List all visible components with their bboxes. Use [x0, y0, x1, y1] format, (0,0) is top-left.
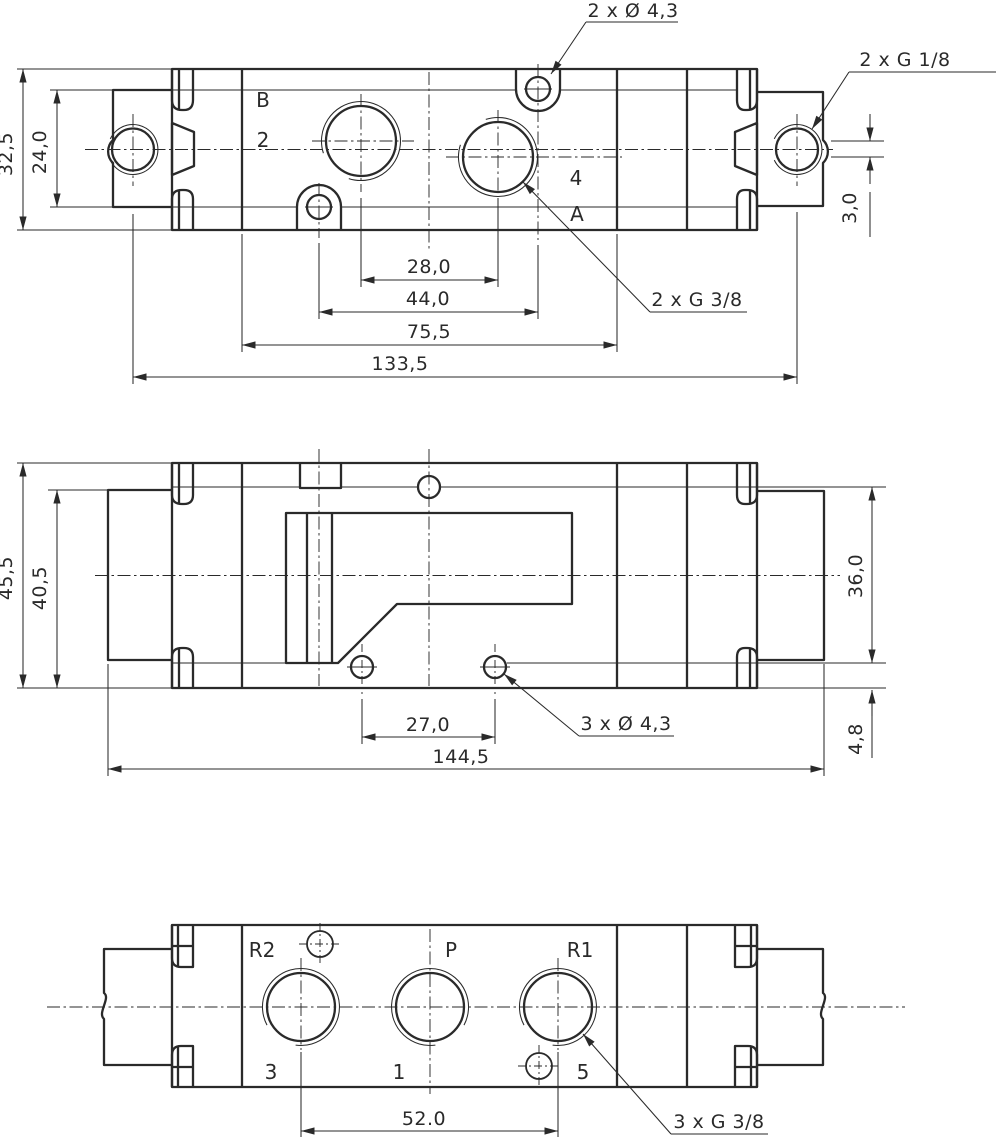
bottom-view-dimensions: 52.0: [301, 1108, 558, 1131]
port-label-r2: R2: [249, 938, 276, 962]
port-label-5: 5: [577, 1060, 590, 1084]
right-port-block: [757, 491, 824, 660]
technical-drawing: 32,5 24,0 28,0 44,0 75,5 133,5 3,0 2 x Ø…: [0, 0, 997, 1138]
dim-top-body-height: 32,5: [0, 132, 17, 176]
dim-side-hole-spacing: 27,0: [406, 714, 450, 736]
port-label-4: 4: [570, 166, 583, 190]
side-view-reference-lines: [172, 487, 886, 688]
port-label-1: 1: [393, 1060, 406, 1084]
mount-tab: [172, 648, 193, 688]
top-notch: [300, 463, 341, 488]
annotation-work-ports: 2 x G 3/8: [651, 289, 742, 311]
bottom-view-port-labels: R2 P R1 3 1 5: [249, 938, 594, 1084]
top-view-centerlines: [85, 64, 833, 252]
drawing-canvas: 32,5 24,0 28,0 44,0 75,5 133,5 3,0 2 x Ø…: [0, 0, 997, 1138]
side-view-dimensions: 45,5 40,5 27,0 144,5 36,0 4,8: [0, 463, 872, 769]
mount-tab: [172, 190, 193, 230]
port-label-b: B: [256, 88, 270, 112]
dim-top-block-height: 24,0: [29, 130, 51, 174]
top-view: 32,5 24,0 28,0 44,0 75,5 133,5 3,0 2 x Ø…: [0, 0, 996, 384]
dim-top-port-offset: 3,0: [839, 192, 861, 224]
side-view-centerlines: [95, 449, 840, 694]
mount-tab: [737, 463, 757, 504]
annotation-side-mount-holes: 3 x Ø 4,3: [580, 713, 671, 735]
dim-top-face-width: 75,5: [407, 321, 451, 343]
annotation-mount-holes: 2 x Ø 4,3: [587, 0, 678, 22]
side-view: 45,5 40,5 27,0 144,5 36,0 4,8 3 x Ø 4,3: [0, 449, 886, 776]
port-label-r1: R1: [567, 938, 594, 962]
annotation-pilot-ports: 2 x G 1/8: [859, 49, 950, 71]
dim-side-body-height: 45,5: [0, 556, 17, 600]
top-view-dimensions: 32,5 24,0 28,0 44,0 75,5 133,5 3,0: [0, 69, 870, 377]
top-view-annotations: 2 x Ø 4,3 2 x G 1/8 2 x G 3/8: [523, 0, 996, 312]
port-label-3: 3: [265, 1060, 278, 1084]
annotation-bottom-work-ports: 3 x G 3/8: [673, 1111, 764, 1133]
bottom-view-body: [102, 925, 825, 1087]
bottom-view-annotations: 3 x G 3/8: [583, 1034, 768, 1134]
side-view-annotations: 3 x Ø 4,3: [504, 674, 674, 736]
dim-side-face-height: 36,0: [845, 554, 867, 598]
dim-side-overall-length: 144,5: [433, 746, 490, 768]
dim-top-hole-spacing: 44,0: [406, 288, 450, 310]
port-label-a: A: [570, 202, 584, 226]
dim-side-block-height: 40,5: [29, 566, 51, 610]
mount-tab: [737, 190, 757, 230]
dim-bottom-port-spacing: 52.0: [402, 1108, 446, 1130]
port-label-2: 2: [257, 128, 270, 152]
left-port-block: [108, 490, 172, 660]
port-label-p: P: [445, 938, 457, 962]
dim-top-overall-length: 133,5: [372, 353, 429, 375]
clamp-wedge-left: [172, 123, 194, 175]
bottom-view: 52.0 3 x G 3/8 R2 P R1 3 1 5: [47, 923, 905, 1137]
left-port-block: [108, 90, 172, 207]
mount-tab: [737, 648, 757, 688]
dim-side-foot-height: 4,8: [845, 723, 867, 755]
dim-top-port-spacing: 28,0: [407, 256, 451, 278]
mount-tab: [737, 69, 757, 110]
clamp-wedge-right: [735, 123, 757, 175]
mount-tab: [172, 463, 193, 504]
